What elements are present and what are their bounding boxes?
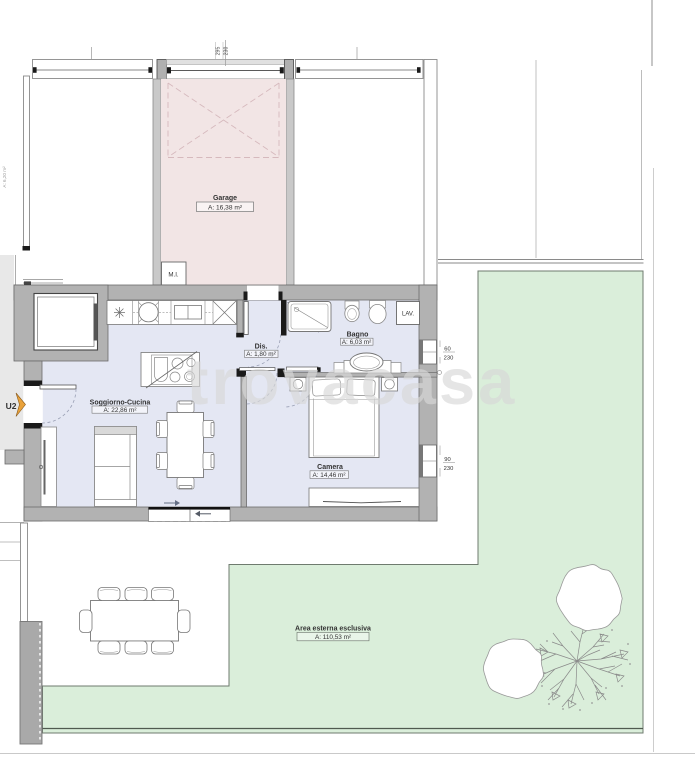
- svg-text:LAV.: LAV.: [402, 312, 414, 318]
- svg-text:A: 14,46 m²: A: 14,46 m²: [312, 472, 345, 479]
- svg-text:M.I.: M.I.: [168, 272, 179, 279]
- svg-text:A: 16,38 m²: A: 16,38 m²: [208, 204, 243, 211]
- svg-text:Area esterna esclusiva: Area esterna esclusiva: [295, 626, 371, 633]
- svg-text:Soggiorno-Cucina: Soggiorno-Cucina: [90, 400, 151, 407]
- svg-text:A: 6,20 m²: A: 6,20 m²: [2, 166, 7, 188]
- svg-text:230: 230: [224, 47, 230, 56]
- svg-text:230: 230: [444, 466, 454, 472]
- svg-text:trovacasa: trovacasa: [187, 345, 518, 418]
- svg-text:Bagno: Bagno: [347, 332, 369, 339]
- svg-text:A: 110,53 m²: A: 110,53 m²: [315, 634, 351, 641]
- svg-text:A: 22,86 m²: A: 22,86 m²: [103, 407, 136, 414]
- svg-text:90: 90: [444, 457, 450, 463]
- svg-text:U2: U2: [6, 401, 17, 411]
- svg-text:Garage: Garage: [213, 195, 237, 202]
- svg-text:295: 295: [216, 47, 222, 56]
- svg-text:Camera: Camera: [317, 464, 343, 471]
